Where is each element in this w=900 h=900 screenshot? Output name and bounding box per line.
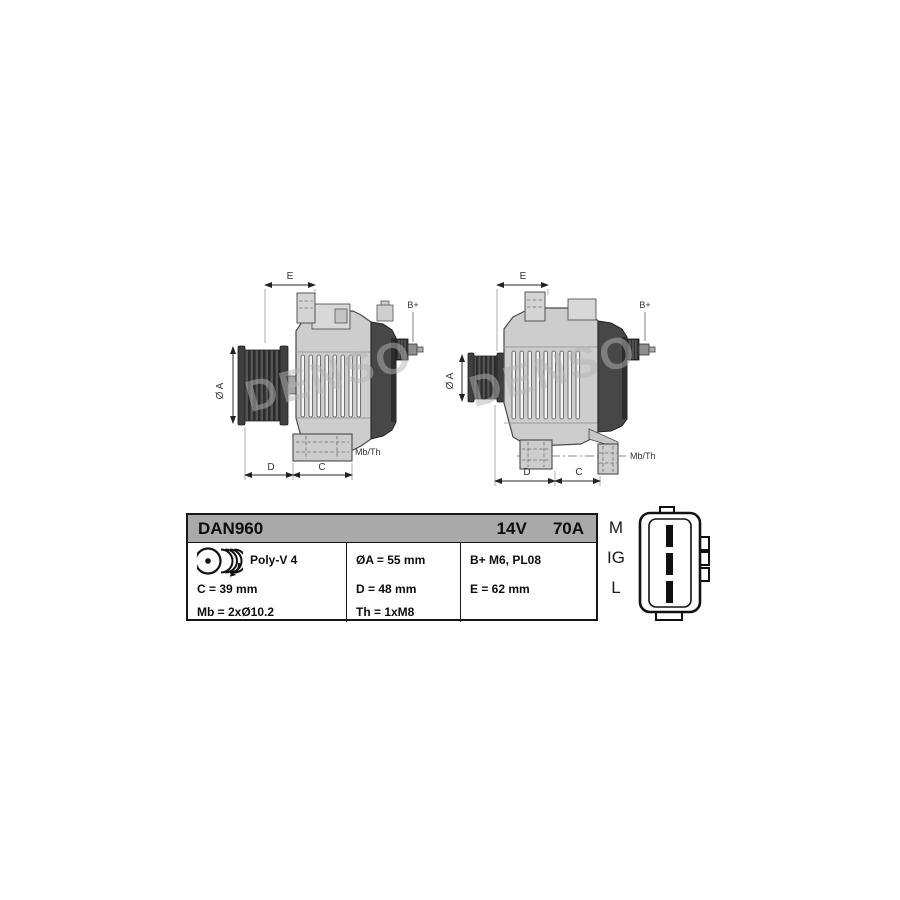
- spec-dim-c: C = 39 mm: [188, 576, 346, 602]
- regulator-detail: [335, 309, 347, 323]
- upper-mounting-lug: [525, 292, 545, 321]
- pin-label-ig: IG: [598, 548, 634, 568]
- current-rating: 70A: [553, 519, 584, 539]
- spec-terminal: B+ M6, PL08: [461, 543, 596, 576]
- ratings: 14V 70A: [497, 519, 596, 539]
- technical-drawing-left: B+ Mb/Th E Ø A D C DENSO: [215, 271, 423, 480]
- pulley-icon: [197, 544, 243, 578]
- model-number: DAN960: [188, 519, 497, 539]
- regulator-block: [568, 299, 596, 320]
- mbth-label: Mb/Th: [355, 447, 381, 457]
- pin-label-l: L: [598, 578, 634, 598]
- pulley-spec-cell: Poly-V 4: [188, 543, 346, 576]
- alternator-drawings: B+ Mb/Th E Ø A D C DENSO: [185, 255, 730, 505]
- spec-column-2: ØA = 55 mm D = 48 mm Th = 1xM8: [346, 543, 460, 622]
- dim-c-label: C: [318, 462, 325, 473]
- spec-dim-d: D = 48 mm: [347, 576, 460, 602]
- product-technical-image: B+ Mb/Th E Ø A D C DENSO: [0, 0, 900, 900]
- spec-table-body: Poly-V 4 C = 39 mm Mb = 2xØ10.2 ØA = 55 …: [188, 543, 596, 622]
- spec-column-3: B+ M6, PL08 E = 62 mm: [460, 543, 596, 622]
- bottom-mounting-lug-right: [598, 444, 618, 474]
- voltage-rating: 14V: [497, 519, 527, 539]
- spec-mount-bolts: Mb = 2xØ10.2: [188, 602, 346, 622]
- spec-thread: Th = 1xM8: [347, 602, 460, 622]
- spec-column-1: Poly-V 4 C = 39 mm Mb = 2xØ10.2: [188, 543, 346, 622]
- connector-pins: [666, 525, 673, 603]
- mbth-label: Mb/Th: [630, 451, 656, 461]
- spec-diameter-a: ØA = 55 mm: [347, 543, 460, 576]
- pulley-type: Poly-V 4: [250, 553, 297, 567]
- bplus-label: B+: [407, 300, 418, 310]
- rear-step-block: [377, 305, 393, 321]
- bottom-mounting-foot: [293, 434, 352, 461]
- dim-diameter-label: Ø A: [215, 382, 226, 399]
- dim-d-label: D: [523, 467, 530, 478]
- technical-drawing-right: B+ Mb/Th E Ø A D C DENS: [445, 271, 656, 486]
- spec-table-header: DAN960 14V 70A: [188, 515, 596, 543]
- dim-e-label: E: [520, 271, 527, 282]
- pin-label-m: M: [598, 518, 634, 538]
- dim-e-label: E: [287, 271, 294, 282]
- spec-table: DAN960 14V 70A: [186, 513, 598, 621]
- bplus-label: B+: [639, 300, 650, 310]
- bottom-mounting-lug-left: [520, 440, 552, 469]
- upper-mounting-lug: [297, 293, 315, 323]
- dim-d-label: D: [267, 462, 274, 473]
- connector-diagram: [636, 502, 716, 624]
- spec-empty-cell: [461, 602, 596, 622]
- dim-diameter-label: Ø A: [445, 372, 456, 389]
- dim-c-label: C: [575, 467, 582, 478]
- spec-dim-e: E = 62 mm: [461, 576, 596, 602]
